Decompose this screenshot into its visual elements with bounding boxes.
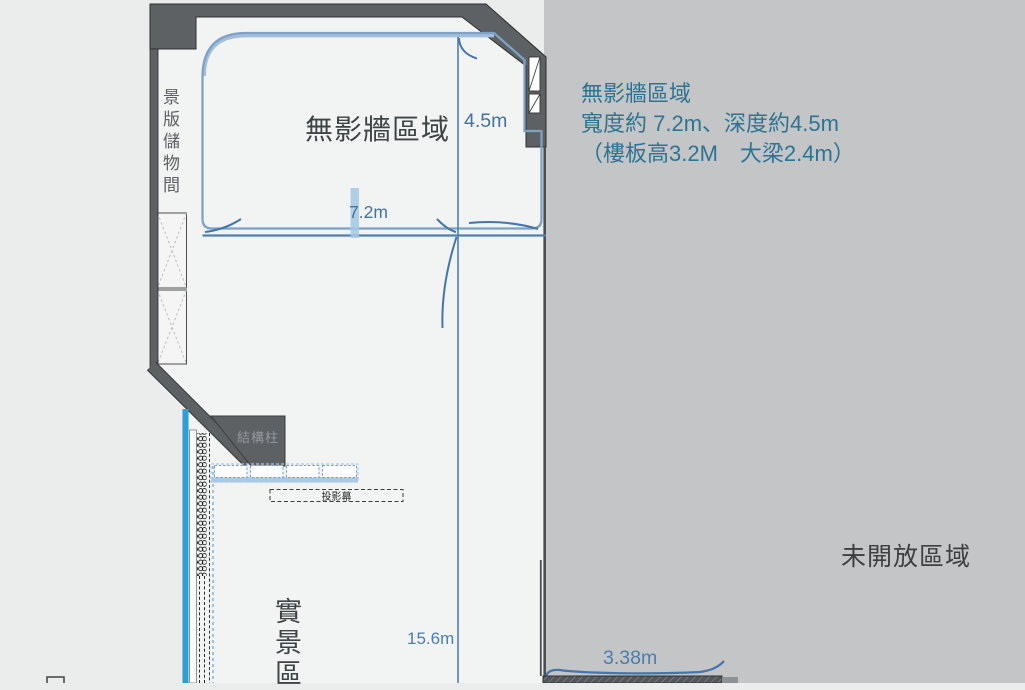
- coil-symbol: [197, 433, 207, 576]
- depth-dimension-label: 4.5m: [464, 112, 507, 132]
- wall-vent-symbols: [529, 57, 540, 113]
- structural-column-label: 結構柱: [237, 431, 279, 444]
- hatched-wall: [543, 676, 722, 683]
- opening-width-label: 3.38m: [603, 649, 657, 669]
- info-panel: 無影牆區域 寬度約 7.2m、深度約4.5m （樓板高3.2M 大梁2.4m）: [581, 79, 855, 169]
- floor-plan-page: 景版儲物間 無影牆區域 4.5m 7.2m 結構柱 投影幕 實景區 15.6m …: [0, 0, 1025, 683]
- restricted-area-label: 未開放區域: [841, 545, 971, 570]
- reality-area-label: 實景區: [272, 597, 299, 690]
- rail-strip: [190, 430, 197, 683]
- projection-screen-label: 投影幕: [270, 489, 403, 502]
- info-panel-height-line: （樓板高3.2M 大梁2.4m）: [581, 139, 855, 169]
- small-fixture: [47, 677, 64, 683]
- backdrop-track: [183, 409, 189, 683]
- info-panel-title: 無影牆區域: [581, 79, 855, 109]
- floor-plan-graphic: [0, 0, 1025, 683]
- storage-room-label: 景版儲物間: [161, 88, 178, 198]
- total-depth-label: 15.6m: [407, 630, 454, 647]
- storage-cabinet-symbols: [158, 213, 187, 364]
- info-panel-size-line: 寬度約 7.2m、深度約4.5m: [581, 109, 855, 139]
- width-dimension-label: 7.2m: [349, 204, 388, 222]
- shadowless-area-label: 無影牆區域: [305, 116, 450, 144]
